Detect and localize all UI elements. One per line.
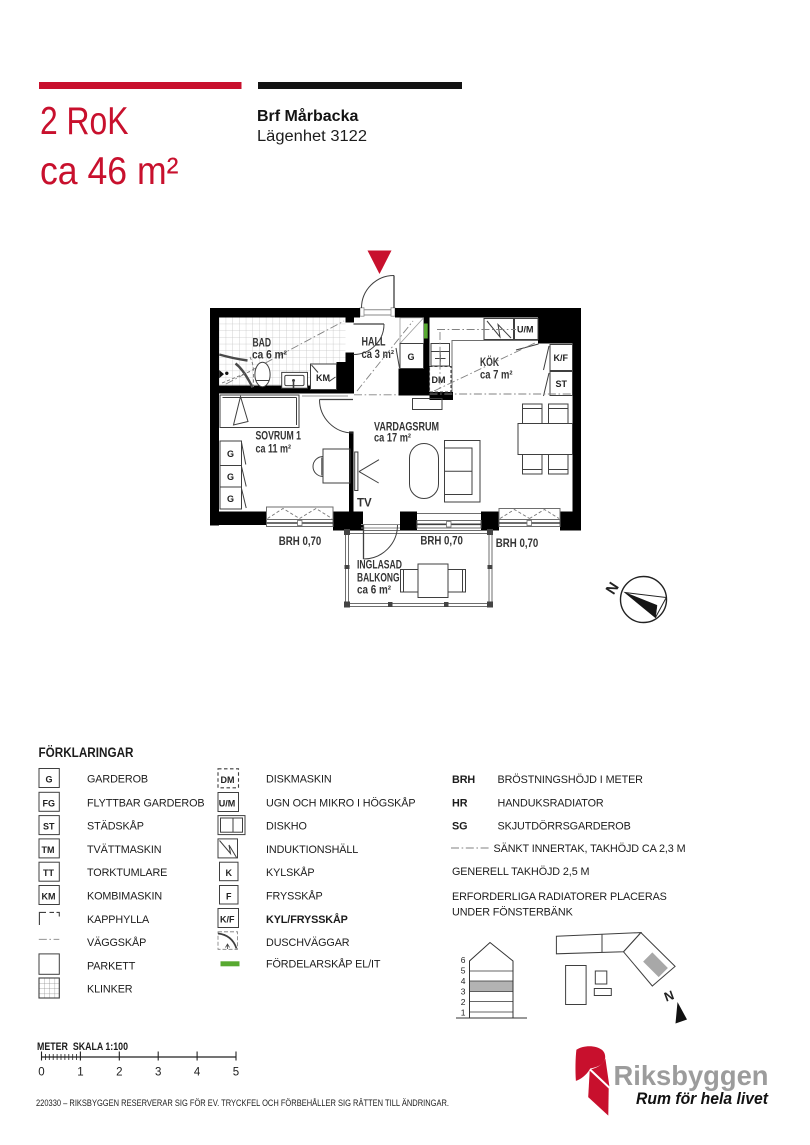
svg-text:4: 4 — [194, 1067, 201, 1079]
svg-text:FG: FG — [43, 798, 56, 808]
svg-text:K: K — [226, 868, 233, 878]
svg-text:DISKMASKIN: DISKMASKIN — [266, 774, 332, 786]
svg-text:FÖRKLARINGAR: FÖRKLARINGAR — [39, 745, 134, 760]
svg-text:KYLSKÅP: KYLSKÅP — [266, 866, 315, 879]
svg-text:ca 11 m²: ca 11 m² — [256, 444, 292, 456]
svg-text:ST: ST — [43, 822, 55, 832]
svg-text:ca 6 m²: ca 6 m² — [357, 584, 391, 596]
svg-text:DUSCHVÄGGAR: DUSCHVÄGGAR — [266, 937, 350, 949]
svg-text:BRH 0,70: BRH 0,70 — [420, 536, 463, 548]
svg-text:U/M: U/M — [517, 325, 534, 335]
svg-text:FRYSSKÅP: FRYSSKÅP — [266, 890, 323, 903]
svg-text:5: 5 — [233, 1067, 239, 1079]
svg-text:SÄNKT INNERTAK, TAKHÖJD CA 2,3: SÄNKT INNERTAK, TAKHÖJD CA 2,3 M — [494, 843, 686, 855]
svg-text:G: G — [227, 472, 234, 482]
svg-text:KÖK: KÖK — [480, 356, 500, 369]
svg-text:DM: DM — [432, 375, 446, 385]
svg-text:INDUKTIONSHÄLL: INDUKTIONSHÄLL — [266, 844, 358, 856]
svg-text:HANDUKSRADIATOR: HANDUKSRADIATOR — [498, 797, 604, 809]
svg-text:HR: HR — [452, 797, 468, 809]
svg-text:STÄDSKÅP: STÄDSKÅP — [87, 820, 144, 833]
svg-text:FÖRDELARSKÅP EL/IT: FÖRDELARSKÅP EL/IT — [266, 958, 381, 971]
svg-text:FLYTTBAR GARDEROB: FLYTTBAR GARDEROB — [87, 797, 204, 809]
svg-text:ca 6 m²: ca 6 m² — [252, 350, 287, 362]
svg-text:TV: TV — [357, 498, 372, 510]
svg-text:G: G — [227, 494, 234, 504]
svg-text:SG: SG — [452, 821, 467, 833]
svg-text:UNDER FÖNSTERBÄNK: UNDER FÖNSTERBÄNK — [452, 907, 574, 919]
svg-text:PARKETT: PARKETT — [87, 960, 136, 972]
svg-text:ca 46 m²: ca 46 m² — [40, 150, 179, 193]
svg-text:K/F: K/F — [554, 353, 569, 363]
svg-text:BRH: BRH — [452, 774, 475, 786]
svg-text:KYL/FRYSSKÅP: KYL/FRYSSKÅP — [266, 913, 348, 926]
svg-text:2: 2 — [461, 997, 466, 1007]
svg-text:BRH 0,70: BRH 0,70 — [496, 538, 539, 550]
svg-text:Riksbyggen: Riksbyggen — [614, 1060, 769, 1091]
svg-text:U/M: U/M — [219, 799, 236, 809]
svg-text:N: N — [662, 987, 676, 1004]
svg-text:5: 5 — [461, 966, 466, 976]
svg-text:KLINKER: KLINKER — [87, 984, 133, 996]
svg-text:BRÖSTNINGSHÖJD I METER: BRÖSTNINGSHÖJD I METER — [498, 774, 644, 786]
svg-text:F: F — [226, 892, 232, 902]
svg-text:ST: ST — [556, 379, 568, 389]
svg-text:KAPPHYLLA: KAPPHYLLA — [87, 914, 150, 926]
svg-text:BALKONG: BALKONG — [357, 573, 400, 585]
svg-text:BRH 0,70: BRH 0,70 — [279, 536, 322, 548]
svg-text:SOVRUM 1: SOVRUM 1 — [256, 431, 302, 443]
svg-text:3: 3 — [155, 1067, 161, 1079]
svg-text:TORKTUMLARE: TORKTUMLARE — [87, 867, 167, 879]
svg-text:3: 3 — [461, 987, 466, 997]
svg-text:METER SKALA 1:100: METER SKALA 1:100 — [37, 1041, 128, 1053]
svg-text:Lägenhet 3122: Lägenhet 3122 — [257, 128, 367, 145]
svg-text:1: 1 — [461, 1008, 466, 1018]
svg-text:BAD: BAD — [253, 338, 272, 350]
svg-text:UGN OCH MIKRO I HÖGSKÅP: UGN OCH MIKRO I HÖGSKÅP — [266, 796, 415, 809]
svg-text:GARDEROB: GARDEROB — [87, 774, 148, 786]
svg-text:220330 – RIKSBYGGEN RESERVERAR: 220330 – RIKSBYGGEN RESERVERAR SIG FÖR E… — [36, 1098, 449, 1108]
svg-text:6: 6 — [461, 955, 466, 965]
svg-text:K/F: K/F — [220, 915, 235, 925]
svg-text:DISKHO: DISKHO — [266, 821, 307, 833]
svg-text:KM: KM — [316, 373, 330, 383]
svg-text:DM: DM — [221, 775, 235, 785]
svg-text:G: G — [408, 352, 415, 362]
svg-text:G: G — [46, 775, 53, 785]
svg-text:0: 0 — [38, 1067, 44, 1079]
svg-text:SKJUTDÖRRSGARDEROB: SKJUTDÖRRSGARDEROB — [498, 821, 631, 833]
svg-text:2 RoK: 2 RoK — [40, 100, 129, 143]
svg-text:TVÄTTMASKIN: TVÄTTMASKIN — [87, 844, 161, 856]
svg-text:ERFORDERLIGA RADIATORER PLACER: ERFORDERLIGA RADIATORER PLACERAS — [452, 891, 667, 903]
svg-text:KM: KM — [42, 892, 56, 902]
svg-text:Brf Mårbacka: Brf Mårbacka — [257, 107, 358, 125]
svg-text:ca 17 m²: ca 17 m² — [374, 433, 411, 445]
svg-text:N: N — [603, 579, 623, 597]
svg-text:GENERELL TAKHÖJD 2,5 M: GENERELL TAKHÖJD 2,5 M — [452, 866, 590, 878]
svg-text:TM: TM — [42, 845, 55, 855]
svg-text:1: 1 — [77, 1067, 83, 1079]
svg-text:G: G — [227, 449, 234, 459]
svg-text:4: 4 — [461, 976, 466, 986]
svg-text:TT: TT — [43, 868, 54, 878]
svg-text:VÄGGSKÅP: VÄGGSKÅP — [87, 936, 146, 949]
svg-text:KOMBIMASKIN: KOMBIMASKIN — [87, 891, 162, 903]
svg-text:Rum för hela livet: Rum för hela livet — [636, 1089, 769, 1108]
svg-text:INGLASAD: INGLASAD — [357, 560, 402, 572]
svg-text:ca 7 m²: ca 7 m² — [480, 370, 513, 382]
svg-text:HALL: HALL — [362, 337, 386, 349]
svg-text:2: 2 — [116, 1067, 122, 1079]
